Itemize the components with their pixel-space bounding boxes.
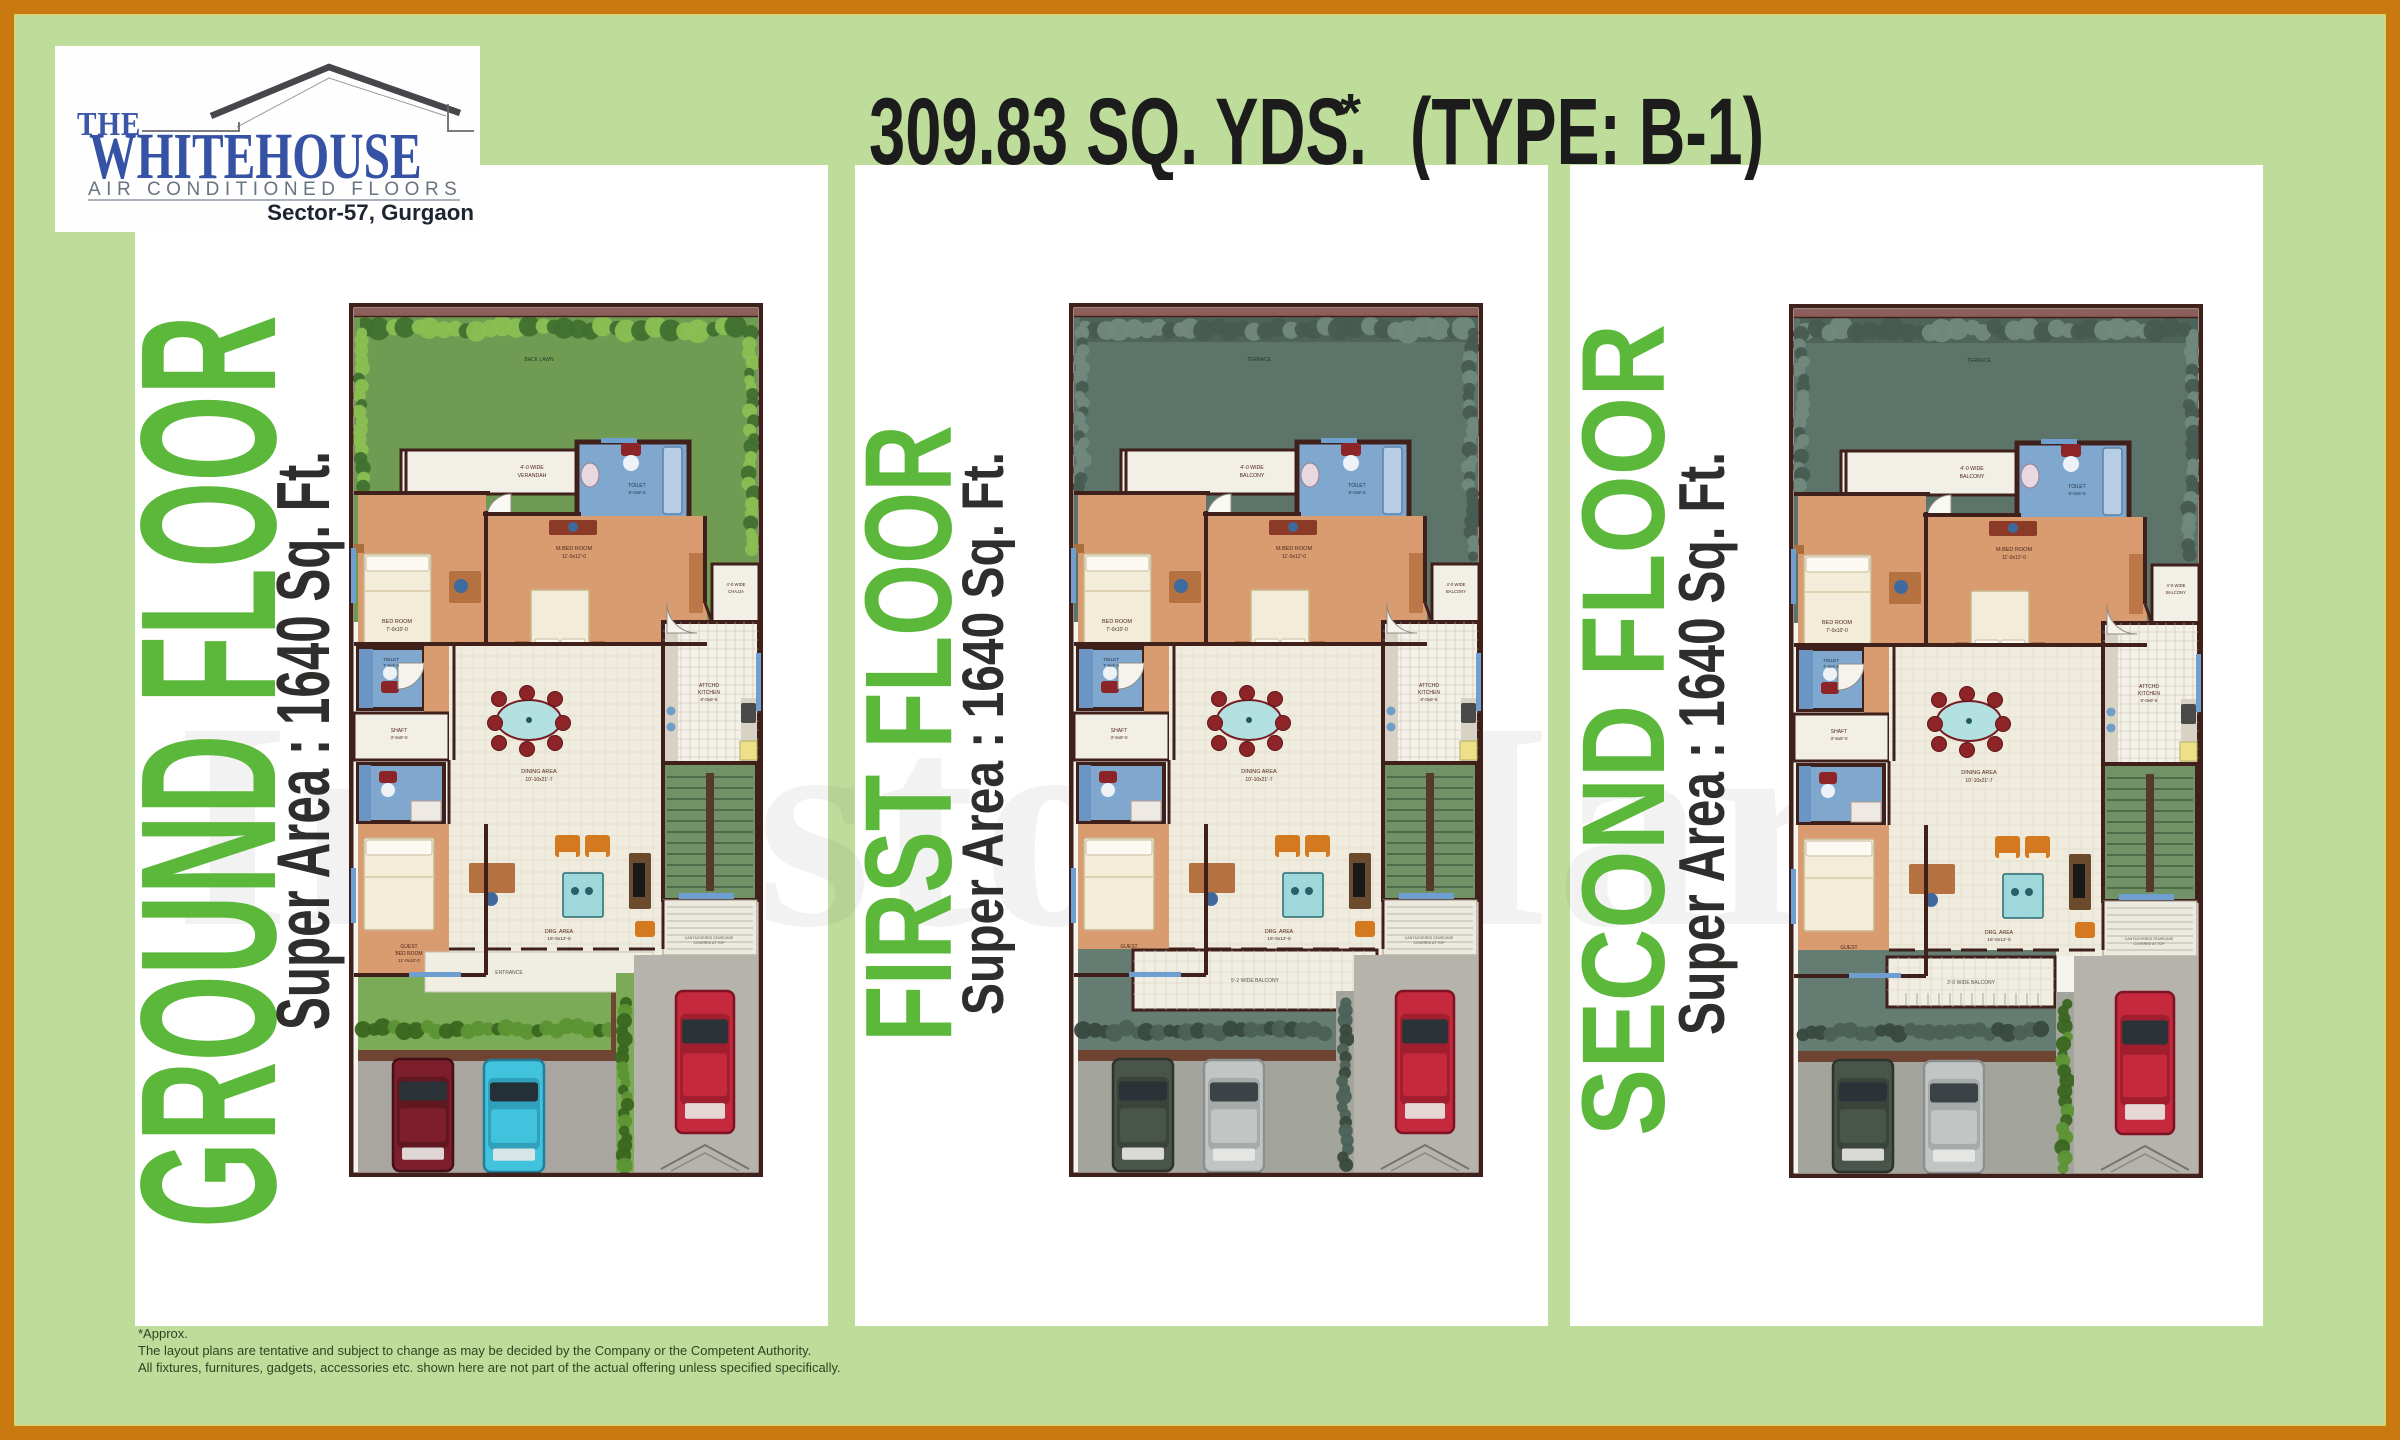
svg-text:4'-0 WIDE: 4'-0 WIDE <box>1240 465 1264 471</box>
svg-text:ENTRANCE: ENTRANCE <box>495 970 523 976</box>
svg-text:4'-0 WIDE: 4'-0 WIDE <box>1447 582 1466 587</box>
svg-text:SHAFT: SHAFT <box>1831 729 1847 735</box>
svg-text:M.BED ROOM: M.BED ROOM <box>556 546 592 552</box>
svg-text:11'-0x10'-0: 11'-0x10'-0 <box>398 958 420 963</box>
svg-text:BED ROOM: BED ROOM <box>382 619 412 625</box>
svg-text:DRG. AREA: DRG. AREA <box>545 929 574 935</box>
svg-text:10'-10x21'-7: 10'-10x21'-7 <box>1245 777 1272 783</box>
svg-text:7'-0x10'-0: 7'-0x10'-0 <box>386 627 408 633</box>
svg-text:DRG. AREA: DRG. AREA <box>1985 930 2014 936</box>
svg-text:BALCONY: BALCONY <box>2166 590 2186 595</box>
svg-text:CANTILEVERED STAIRCASE: CANTILEVERED STAIRCASE <box>1405 936 1454 940</box>
svg-text:TOILET: TOILET <box>1348 483 1365 489</box>
svg-text:BED ROOM: BED ROOM <box>1822 620 1852 626</box>
svg-text:VERANDAH: VERANDAH <box>518 473 547 479</box>
svg-text:Super Area : 1640 Sq. Ft.: Super Area : 1640 Sq. Ft. <box>1666 452 1738 1035</box>
svg-text:TOILET: TOILET <box>1103 657 1119 662</box>
svg-text:8'-0x8'-6: 8'-0x8'-6 <box>2141 698 2158 703</box>
svg-text:DRG. AREA: DRG. AREA <box>1265 929 1294 935</box>
svg-text:*: * <box>1340 83 1361 143</box>
svg-text:DINING AREA: DINING AREA <box>521 769 557 775</box>
svg-text:8'-0x5'-0: 8'-0x5'-0 <box>1349 490 1366 495</box>
svg-text:SHAFT: SHAFT <box>391 728 407 734</box>
svg-text:ATTCHD: ATTCHD <box>2139 684 2159 690</box>
svg-text:3'-6x8'-0: 3'-6x8'-0 <box>391 735 408 740</box>
svg-text:7'-0x10'-0: 7'-0x10'-0 <box>1826 628 1848 634</box>
svg-text:ATTCHD: ATTCHD <box>699 683 719 689</box>
svg-text:3'-6x8'-0: 3'-6x8'-0 <box>1831 736 1848 741</box>
svg-text:BALCONY: BALCONY <box>1446 589 1466 594</box>
svg-text:8'-0x8'-6: 8'-0x8'-6 <box>701 697 718 702</box>
svg-text:11'-0x12'-0: 11'-0x12'-0 <box>1282 554 1306 560</box>
svg-text:BED ROOM: BED ROOM <box>395 951 422 957</box>
svg-text:16'-0x12'-0: 16'-0x12'-0 <box>1267 936 1291 942</box>
svg-text:Super Area : 1640 Sq. Ft.: Super Area : 1640 Sq. Ft. <box>261 451 346 1030</box>
svg-text:M.BED ROOM: M.BED ROOM <box>1996 547 2032 553</box>
svg-text:BALCONY: BALCONY <box>1240 473 1265 479</box>
svg-text:7'-6x4'-0: 7'-6x4'-0 <box>1823 664 1839 669</box>
svg-text:ATTCHD: ATTCHD <box>1419 683 1439 689</box>
svg-text:8'-0x5'-0: 8'-0x5'-0 <box>2069 491 2086 496</box>
svg-text:16'-0x12'-0: 16'-0x12'-0 <box>1987 937 2011 943</box>
svg-text:7'-6x4'-0: 7'-6x4'-0 <box>1103 663 1119 668</box>
svg-text:11'-0x12'-0: 11'-0x12'-0 <box>562 554 586 560</box>
svg-text:10'-10x21'-7: 10'-10x21'-7 <box>1965 778 1992 784</box>
svg-text:TERRACE: TERRACE <box>1967 358 1992 364</box>
svg-text:BED ROOM: BED ROOM <box>1102 619 1132 625</box>
svg-text:5'-2 WIDE BALCONY: 5'-2 WIDE BALCONY <box>1231 978 1280 984</box>
svg-text:CANTILEVERED STAIRCASE: CANTILEVERED STAIRCASE <box>685 936 734 940</box>
svg-text:Super Area : 1640 Sq. Ft.: Super Area : 1640 Sq. Ft. <box>950 452 1015 1015</box>
svg-text:DINING AREA: DINING AREA <box>1241 769 1277 775</box>
svg-text:8'-0x8'-6: 8'-0x8'-6 <box>1421 697 1438 702</box>
svg-text:BACK LAWN: BACK LAWN <box>524 357 554 363</box>
svg-text:COVERED AT TOP: COVERED AT TOP <box>693 941 725 945</box>
svg-text:10'-10x21'-7: 10'-10x21'-7 <box>525 777 552 783</box>
svg-text:TOILET: TOILET <box>1823 658 1839 663</box>
svg-text:KITCHEN: KITCHEN <box>698 690 720 696</box>
svg-text:TERRACE: TERRACE <box>1247 357 1272 363</box>
svg-text:16'-0x12'-0: 16'-0x12'-0 <box>547 936 571 942</box>
svg-text:7'-6x4'-0: 7'-6x4'-0 <box>383 663 399 668</box>
svg-text:4'-0 WIDE: 4'-0 WIDE <box>727 582 746 587</box>
svg-text:TOILET: TOILET <box>628 483 645 489</box>
svg-text:3'-0 WIDE BALCONY: 3'-0 WIDE BALCONY <box>1947 980 1996 986</box>
svg-text:M.BED ROOM: M.BED ROOM <box>1276 546 1312 552</box>
svg-text:SHAFT: SHAFT <box>1111 728 1127 734</box>
svg-text:KITCHEN: KITCHEN <box>2138 691 2160 697</box>
svg-text:BALCONY: BALCONY <box>1960 474 1985 480</box>
svg-text:TOILET: TOILET <box>2068 484 2085 490</box>
svg-text:TOILET: TOILET <box>383 657 399 662</box>
svg-text:KITCHEN: KITCHEN <box>1418 690 1440 696</box>
svg-text:4'-0 WIDE: 4'-0 WIDE <box>520 465 544 471</box>
svg-text:7'-0x10'-0: 7'-0x10'-0 <box>1106 627 1128 633</box>
svg-text:4'-0 WIDE: 4'-0 WIDE <box>1960 466 1984 472</box>
svg-text:3'-6x8'-0: 3'-6x8'-0 <box>1111 735 1128 740</box>
svg-text:CHAJJA: CHAJJA <box>728 589 744 594</box>
svg-text:4'-0 WIDE: 4'-0 WIDE <box>2167 583 2186 588</box>
svg-text:GUEST: GUEST <box>400 944 417 950</box>
svg-text:11'-0x12'-0: 11'-0x12'-0 <box>2002 555 2026 561</box>
svg-text:COVERED AT TOP: COVERED AT TOP <box>2133 942 2165 946</box>
svg-text:8'-0x5'-0: 8'-0x5'-0 <box>629 490 646 495</box>
svg-text:CANTILEVERED STAIRCASE: CANTILEVERED STAIRCASE <box>2125 937 2174 941</box>
svg-text:DINING AREA: DINING AREA <box>1961 770 1997 776</box>
svg-text:COVERED AT TOP: COVERED AT TOP <box>1413 941 1445 945</box>
